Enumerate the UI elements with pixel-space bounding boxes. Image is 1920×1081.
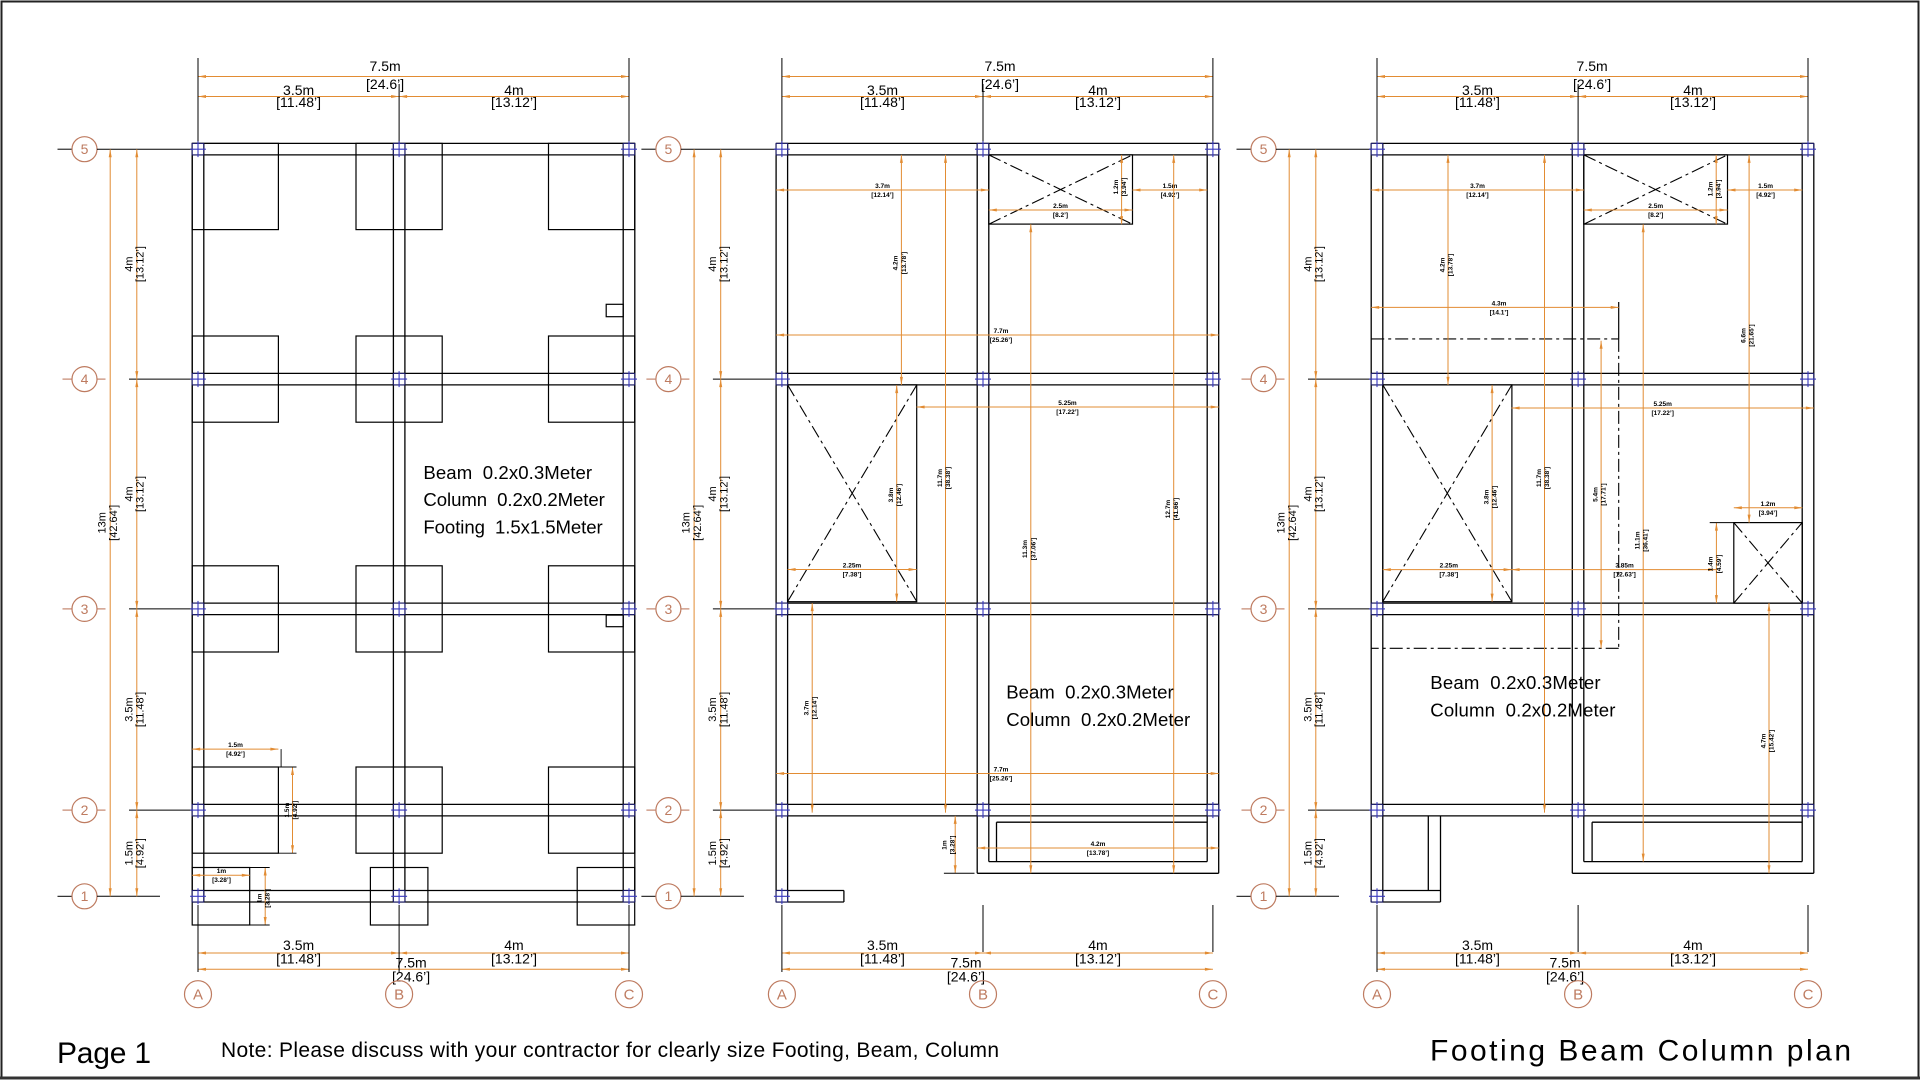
svg-text:4: 4 <box>1260 371 1268 387</box>
svg-text:[13.12’]: [13.12’] <box>719 246 731 282</box>
svg-text:[11.48’]: [11.48’] <box>719 692 731 727</box>
svg-text:[8.2’]: [8.2’] <box>1648 212 1663 219</box>
svg-text:3.7m: 3.7m <box>804 700 811 715</box>
svg-text:1.5m: 1.5m <box>228 742 243 749</box>
svg-text:A: A <box>1372 987 1382 1004</box>
svg-text:[13.12’]: [13.12’] <box>135 246 147 282</box>
svg-text:3: 3 <box>81 601 89 617</box>
svg-text:2.25m: 2.25m <box>1440 563 1459 570</box>
svg-text:C: C <box>1207 987 1218 1004</box>
svg-text:3.5m: 3.5m <box>1302 697 1314 721</box>
svg-text:[13.78’]: [13.78’] <box>1087 850 1109 857</box>
svg-text:4.3m: 4.3m <box>1492 300 1507 307</box>
svg-text:[14.1’]: [14.1’] <box>1490 309 1509 316</box>
svg-text:1: 1 <box>665 888 673 904</box>
svg-text:[4.92’]: [4.92’] <box>135 838 147 868</box>
svg-text:[4.92’]: [4.92’] <box>1314 838 1326 868</box>
svg-text:A: A <box>777 987 787 1004</box>
svg-text:[13.12’]: [13.12’] <box>1670 950 1716 966</box>
svg-text:1.2m: 1.2m <box>1761 501 1776 508</box>
svg-text:[11.48’]: [11.48’] <box>276 950 321 966</box>
svg-text:3.5m: 3.5m <box>123 697 135 721</box>
svg-text:[11.48’]: [11.48’] <box>135 692 147 727</box>
svg-text:[36.41’]: [36.41’] <box>1643 529 1650 551</box>
svg-text:5: 5 <box>81 141 89 157</box>
svg-text:[21.65’]: [21.65’] <box>1749 324 1756 346</box>
svg-text:4m: 4m <box>707 256 719 271</box>
svg-text:[13.12’]: [13.12’] <box>1314 476 1326 512</box>
svg-text:7.7m: 7.7m <box>994 328 1009 335</box>
svg-text:[17.71’]: [17.71’] <box>1601 483 1608 505</box>
svg-text:[8.2’]: [8.2’] <box>1053 212 1068 219</box>
svg-text:2: 2 <box>81 802 89 818</box>
svg-text:[3.28’]: [3.28’] <box>212 877 231 884</box>
svg-text:4m: 4m <box>123 486 135 501</box>
svg-text:Footing 1.5x1.5Meter: Footing 1.5x1.5Meter <box>423 517 602 538</box>
svg-text:[42.64’]: [42.64’] <box>692 505 704 541</box>
svg-text:5: 5 <box>665 141 673 157</box>
svg-text:1.2m: 1.2m <box>1708 181 1715 196</box>
svg-text:[13.78’]: [13.78’] <box>901 252 908 274</box>
svg-text:[13.12’]: [13.12’] <box>719 476 731 512</box>
svg-text:4m: 4m <box>707 486 719 501</box>
svg-text:[4.59’]: [4.59’] <box>1716 555 1723 574</box>
svg-text:4m: 4m <box>1302 486 1314 501</box>
svg-text:[38.38’]: [38.38’] <box>1544 467 1551 489</box>
svg-text:11.1m: 11.1m <box>1635 531 1642 549</box>
svg-text:4m: 4m <box>1302 256 1314 271</box>
svg-text:Beam 0.2x0.3Meter: Beam 0.2x0.3Meter <box>1430 672 1600 693</box>
svg-text:B: B <box>978 987 988 1004</box>
svg-text:3.7m: 3.7m <box>1470 183 1485 190</box>
svg-text:B: B <box>1573 987 1583 1004</box>
svg-text:[13.12’]: [13.12’] <box>1075 950 1121 966</box>
svg-text:4: 4 <box>81 371 89 387</box>
svg-text:4.2m: 4.2m <box>1091 841 1106 848</box>
svg-text:[13.12’]: [13.12’] <box>135 476 147 512</box>
svg-text:5.25m: 5.25m <box>1653 401 1672 408</box>
svg-text:7.5m: 7.5m <box>1577 58 1608 74</box>
svg-text:[25.26’]: [25.26’] <box>990 337 1012 344</box>
svg-text:[11.48’]: [11.48’] <box>1455 950 1500 966</box>
svg-text:13m: 13m <box>97 512 109 533</box>
svg-text:7.5m: 7.5m <box>370 58 401 74</box>
svg-text:[13.12’]: [13.12’] <box>491 94 537 110</box>
svg-text:[12.14’]: [12.14’] <box>1466 192 1488 199</box>
svg-text:[11.48’]: [11.48’] <box>276 94 321 110</box>
svg-text:1: 1 <box>1260 888 1268 904</box>
svg-text:5.25m: 5.25m <box>1058 400 1077 407</box>
svg-text:[3.28’]: [3.28’] <box>950 836 957 855</box>
svg-text:[24.6’]: [24.6’] <box>1546 969 1584 985</box>
svg-text:1.5m: 1.5m <box>1163 183 1178 190</box>
svg-text:13m: 13m <box>1276 512 1288 533</box>
svg-text:1.5m: 1.5m <box>1302 841 1314 865</box>
svg-text:[12.14’]: [12.14’] <box>812 697 819 719</box>
svg-text:2: 2 <box>665 802 673 818</box>
svg-text:[11.48’]: [11.48’] <box>1314 692 1326 727</box>
svg-text:[4.92’]: [4.92’] <box>1161 192 1180 199</box>
svg-text:6.6m: 6.6m <box>1740 328 1747 343</box>
svg-text:3.5m: 3.5m <box>707 697 719 721</box>
svg-text:Page 1: Page 1 <box>57 1037 151 1070</box>
svg-text:4.2m: 4.2m <box>1439 257 1446 272</box>
svg-text:Column 0.2x0.2Meter: Column 0.2x0.2Meter <box>1430 700 1615 721</box>
svg-text:[13.78’]: [13.78’] <box>1448 254 1455 276</box>
svg-text:C: C <box>1803 987 1814 1004</box>
svg-text:[11.48’]: [11.48’] <box>860 94 905 110</box>
svg-text:1m: 1m <box>217 868 227 875</box>
svg-text:[25.26’]: [25.26’] <box>990 776 1012 783</box>
svg-text:[11.48’]: [11.48’] <box>1455 94 1500 110</box>
svg-text:[4.92’]: [4.92’] <box>719 838 731 868</box>
svg-text:[12.63’]: [12.63’] <box>1613 572 1635 579</box>
svg-text:[13.12’]: [13.12’] <box>1075 94 1121 110</box>
svg-text:[42.64’]: [42.64’] <box>108 505 120 541</box>
svg-text:1.5m: 1.5m <box>284 802 291 817</box>
svg-text:1m: 1m <box>941 840 948 850</box>
svg-text:[4.92’]: [4.92’] <box>1756 192 1775 199</box>
svg-text:4: 4 <box>665 371 673 387</box>
svg-text:3.8m: 3.8m <box>888 487 895 502</box>
svg-text:A: A <box>193 987 203 1004</box>
svg-text:[13.12’]: [13.12’] <box>1314 246 1326 282</box>
svg-text:3: 3 <box>1260 601 1268 617</box>
svg-text:[24.6’]: [24.6’] <box>1573 76 1611 92</box>
svg-text:[37.06’]: [37.06’] <box>1030 538 1037 560</box>
svg-text:4.7m: 4.7m <box>1760 733 1767 748</box>
svg-text:Footing Beam Column plan: Footing Beam Column plan <box>1430 1035 1851 1068</box>
svg-text:[13.12’]: [13.12’] <box>491 950 537 966</box>
svg-text:[3.28’]: [3.28’] <box>264 889 271 908</box>
svg-text:Column 0.2x0.2Meter: Column 0.2x0.2Meter <box>1006 709 1190 730</box>
svg-text:B: B <box>394 987 404 1004</box>
svg-text:[3.94’]: [3.94’] <box>1121 178 1128 197</box>
svg-text:1.5m: 1.5m <box>1758 183 1773 190</box>
svg-text:2.25m: 2.25m <box>843 563 862 570</box>
svg-text:[24.6’]: [24.6’] <box>366 76 404 92</box>
svg-text:3: 3 <box>665 601 673 617</box>
svg-text:3.8m: 3.8m <box>1483 489 1490 504</box>
svg-text:12.7m: 12.7m <box>1165 500 1172 519</box>
svg-text:[17.22’]: [17.22’] <box>1651 410 1673 417</box>
svg-text:5: 5 <box>1260 141 1268 157</box>
svg-text:[12.14’]: [12.14’] <box>871 192 893 199</box>
svg-text:[42.64’]: [42.64’] <box>1287 505 1299 541</box>
svg-text:[7.38’]: [7.38’] <box>843 572 862 579</box>
svg-text:[24.6’]: [24.6’] <box>947 969 985 985</box>
svg-text:[7.38’]: [7.38’] <box>1439 572 1458 579</box>
svg-text:[3.94’]: [3.94’] <box>1716 180 1723 199</box>
svg-text:[17.22’]: [17.22’] <box>1056 409 1078 416</box>
svg-text:4m: 4m <box>123 256 135 271</box>
svg-text:5.4m: 5.4m <box>1592 487 1599 502</box>
svg-text:[12.46’]: [12.46’] <box>1492 486 1499 508</box>
svg-text:2: 2 <box>1260 802 1268 818</box>
svg-text:[38.38’]: [38.38’] <box>945 467 952 489</box>
svg-text:3.7m: 3.7m <box>875 183 890 190</box>
svg-text:11.7m: 11.7m <box>1536 469 1543 487</box>
svg-text:4.2m: 4.2m <box>893 255 900 270</box>
svg-text:[3.94’]: [3.94’] <box>1759 510 1778 517</box>
svg-text:[15.42’]: [15.42’] <box>1769 730 1776 752</box>
svg-text:1.5m: 1.5m <box>707 841 719 865</box>
svg-text:3.85m: 3.85m <box>1615 563 1634 570</box>
svg-text:Note: Please discuss with your: Note: Please discuss with your contracto… <box>221 1039 999 1062</box>
svg-text:13m: 13m <box>681 512 693 533</box>
svg-text:2.5m: 2.5m <box>1648 203 1663 210</box>
svg-text:[4.92’]: [4.92’] <box>292 801 299 820</box>
svg-text:[13.12’]: [13.12’] <box>1670 94 1716 110</box>
svg-text:Column 0.2x0.2Meter: Column 0.2x0.2Meter <box>423 489 604 510</box>
svg-text:[24.6’]: [24.6’] <box>981 76 1019 92</box>
svg-text:[24.6’]: [24.6’] <box>392 969 430 985</box>
svg-text:1.2m: 1.2m <box>1113 179 1120 194</box>
svg-text:[4.92’]: [4.92’] <box>226 751 245 758</box>
svg-text:1.4m: 1.4m <box>1708 556 1715 571</box>
svg-text:11.3m: 11.3m <box>1022 540 1029 558</box>
svg-text:11.7m: 11.7m <box>937 469 944 487</box>
svg-text:7.5m: 7.5m <box>984 58 1015 74</box>
svg-text:1m: 1m <box>256 893 263 903</box>
svg-text:[11.48’]: [11.48’] <box>860 950 905 966</box>
svg-text:7.7m: 7.7m <box>994 767 1009 774</box>
svg-text:1: 1 <box>81 888 89 904</box>
svg-text:Beam 0.2x0.3Meter: Beam 0.2x0.3Meter <box>1006 682 1173 703</box>
svg-text:Beam 0.2x0.3Meter: Beam 0.2x0.3Meter <box>423 462 592 483</box>
svg-text:[41.66’]: [41.66’] <box>1173 498 1180 520</box>
svg-text:1.5m: 1.5m <box>123 841 135 865</box>
svg-text:C: C <box>624 987 635 1004</box>
svg-text:[12.46’]: [12.46’] <box>896 484 903 506</box>
svg-text:2.5m: 2.5m <box>1053 203 1068 210</box>
